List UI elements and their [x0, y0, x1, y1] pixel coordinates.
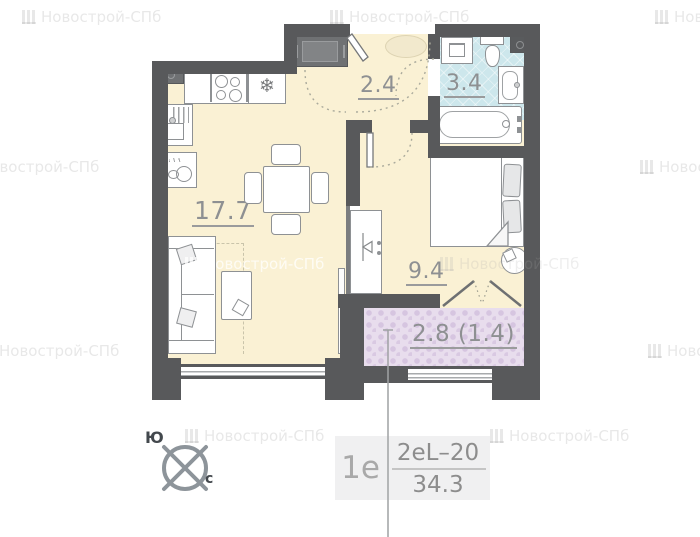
bedroom-door-swing-arc	[370, 133, 412, 167]
plan-annotations	[0, 0, 700, 537]
compass-south-label: Ю	[145, 428, 164, 447]
compass-north-label: с	[205, 471, 213, 487]
bedroom-door-leaf	[367, 133, 373, 167]
balcony-door-leaf	[443, 281, 474, 306]
hall-door-swing-arc	[305, 70, 346, 112]
floor-plan: Новострой-СПб Новострой-СПб Новострой-СП…	[0, 0, 700, 537]
hanger-icon	[363, 242, 372, 253]
entrance-door-swing-arc	[356, 40, 430, 112]
entrance-door-leaf	[347, 34, 368, 61]
balcony-door-swing-dots	[474, 281, 490, 304]
blanket-fold-icon	[487, 222, 508, 246]
bathroom-door-swing-arc	[396, 59, 434, 96]
balcony-door-leaf	[490, 281, 521, 306]
